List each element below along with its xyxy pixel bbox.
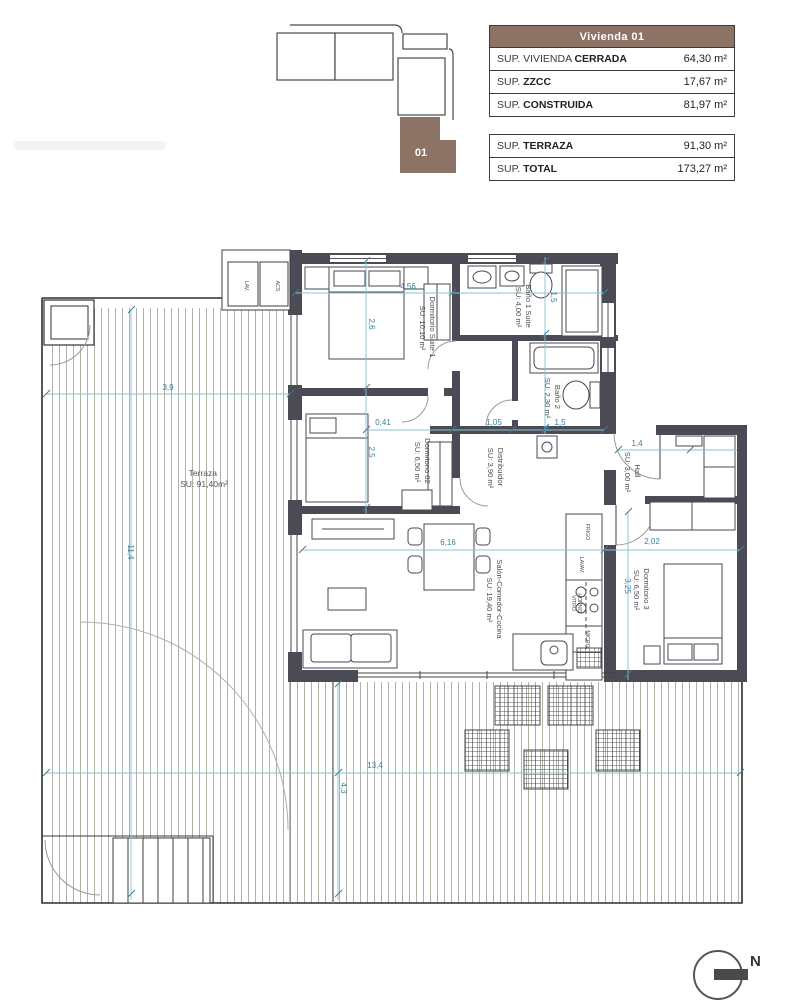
vivienda-table: Vivienda 01 SUP. VIVIENDA CERRADA 64,30 … — [489, 25, 735, 117]
faint-watermark — [14, 141, 166, 150]
label-horno: HORNO — [576, 593, 582, 612]
key-plan-unit-01-shape — [400, 117, 456, 173]
table-row-terraza: SUP. TERRAZA 91,30 m² — [490, 135, 734, 157]
key-plan — [277, 25, 456, 173]
vivienda-table-title: Vivienda 01 — [490, 26, 734, 47]
row-label: SUP. TOTAL — [497, 163, 557, 175]
bath1-fixtures — [468, 264, 602, 336]
label-micro: MICRO — [584, 630, 590, 647]
table-row-construida: SUP. CONSTRUIDA 81,97 m² — [490, 93, 734, 116]
label-acs: ACS — [274, 281, 280, 292]
room-label-dorm02: Dormitorio 02 SU: 6,50 m² — [413, 438, 432, 486]
salon-furniture — [303, 519, 490, 668]
hall-furniture — [676, 436, 735, 498]
label-frigo: FRIGO — [584, 524, 590, 540]
row-label: SUP. ZZCC — [497, 76, 551, 88]
key-plan-unit-label: 01 — [415, 147, 427, 159]
room-label-dorm3: Dormitorio 3 SU: 6,50 m² — [632, 568, 651, 611]
row-value: 64,30 m² — [684, 53, 727, 65]
area-tables: Vivienda 01 SUP. VIVIENDA CERRADA 64,30 … — [489, 25, 735, 181]
row-label: SUP. VIVIENDA CERRADA — [497, 53, 627, 65]
bath2-fixtures — [530, 343, 600, 458]
dim-2-6: 2,6 — [367, 318, 376, 330]
dim-2-5: 2,5 — [367, 446, 376, 458]
dim-1-5-v: 1,5 — [549, 291, 558, 303]
dorm3-furniture — [644, 502, 735, 664]
dim-0-41: 0,41 — [375, 418, 391, 427]
dim-4-3: 4,3 — [339, 782, 348, 794]
dim-1-05: 1,05 — [486, 418, 502, 427]
room-label-distribuidor: Distribuidor SU: 3,90 m² — [486, 448, 505, 489]
room-label-bano1: Baño 1 Suite SU: 4,00 m² — [514, 284, 533, 330]
table-row-vivienda-cerrada: SUP. VIVIENDA CERRADA 64,30 m² — [490, 47, 734, 70]
north-arrow: N — [694, 951, 761, 999]
dim-4-56: 4,56 — [400, 282, 416, 291]
floor-plan-sheet: { "header": { "keyplan_unit": "01", "tab… — [0, 0, 800, 1007]
label-lavav: LAVAV. — [578, 557, 584, 574]
room-label-bano2: Baño 2 SU: 2,30 m² — [543, 378, 562, 419]
dim-3-25: 3,25 — [623, 578, 632, 594]
dim-1-5: 1,5 — [554, 418, 566, 427]
dim-1-4: 1,4 — [631, 439, 643, 448]
dim-6-16: 6,16 — [440, 538, 456, 547]
row-value: 91,30 m² — [684, 140, 727, 152]
label-lav: LAV. — [243, 281, 249, 291]
row-value: 17,67 m² — [684, 76, 727, 88]
room-label-suite1: Dormitorio Suite 1 SU: 10,10 m² — [418, 297, 437, 360]
dim-3-9: 3,9 — [162, 383, 174, 392]
table-row-zzcc: SUP. ZZCC 17,67 m² — [490, 70, 734, 93]
label-vitro: VITRO — [570, 595, 576, 611]
totals-table: SUP. TERRAZA 91,30 m² SUP. TOTAL 173,27 … — [489, 134, 735, 181]
dim-13-4: 13,4 — [367, 761, 383, 770]
dim-11-4: 11,4 — [126, 545, 135, 561]
row-value: 173,27 m² — [677, 163, 727, 175]
table-row-total: SUP. TOTAL 173,27 m² — [490, 157, 734, 180]
dim-2-02: 2,02 — [644, 537, 660, 546]
room-label-hall: Hall SU: 3,00 m² — [623, 452, 642, 493]
north-label: N — [750, 953, 761, 970]
row-value: 81,97 m² — [684, 99, 727, 111]
row-label: SUP. TERRAZA — [497, 140, 573, 152]
row-label: SUP. CONSTRUIDA — [497, 99, 593, 111]
